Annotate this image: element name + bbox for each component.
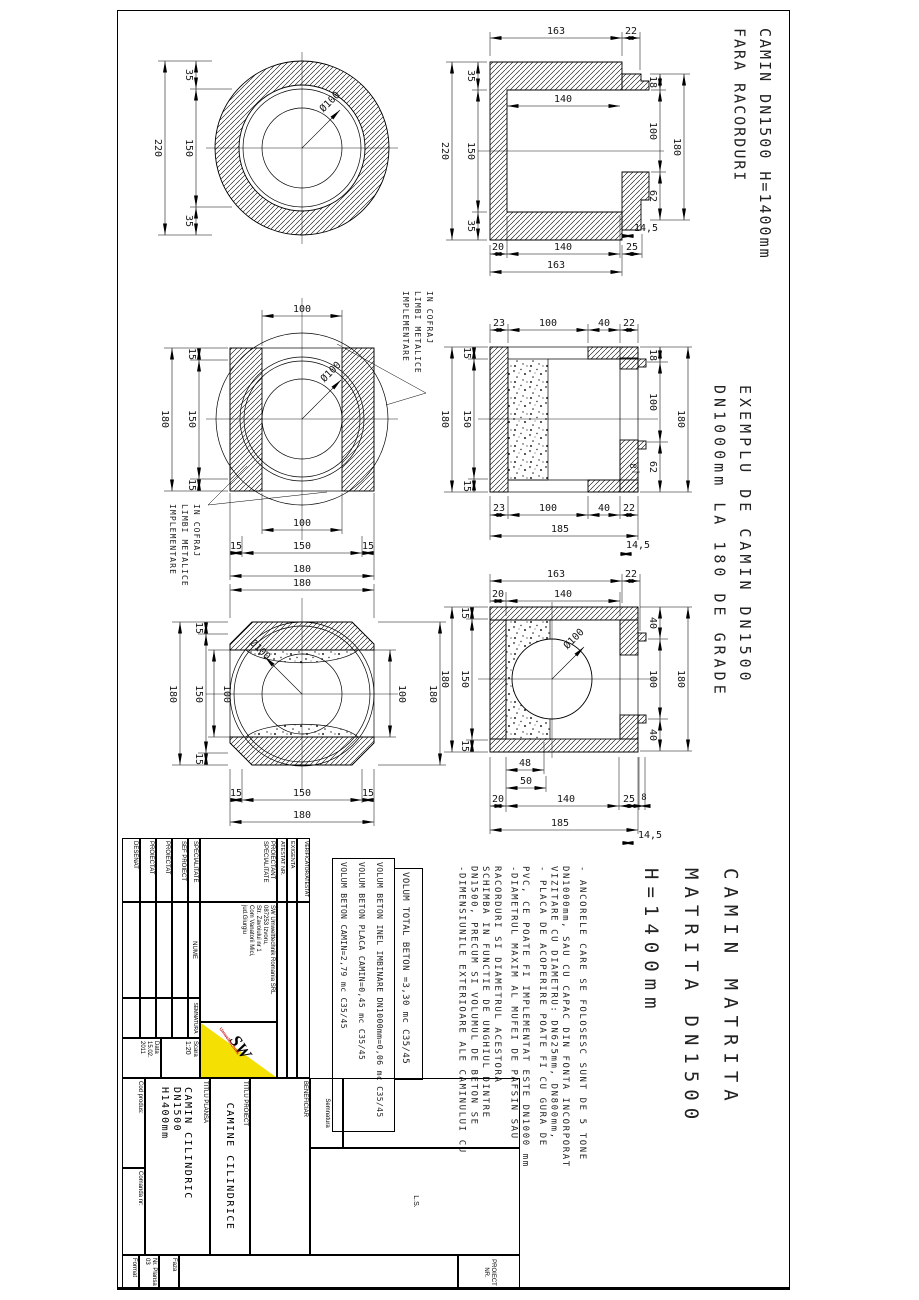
- titleblock-empty-cell: [172, 902, 188, 998]
- dim-label: 150: [293, 788, 311, 799]
- dim-label: 100: [293, 304, 311, 315]
- dim-label: 25: [623, 794, 635, 805]
- titleblock-empty-cell: [297, 902, 310, 1078]
- company-info: SW Umwelttechnik Romania SRL087253 Izvor…: [200, 902, 277, 1022]
- dim-label: 35: [183, 69, 194, 81]
- titleblock-empty-cell: [156, 998, 172, 1038]
- dim-label: 15: [186, 479, 197, 491]
- dim-label: 22: [625, 26, 637, 37]
- title-line: EXEMPLU DE CAMIN DN1500: [732, 385, 758, 715]
- titleblock-empty-cell: [277, 902, 287, 1078]
- dim-label: 180: [427, 685, 438, 703]
- proiectat-label: PROIECTAT: [140, 838, 156, 902]
- dim-label: 163: [547, 260, 565, 271]
- view-plan-fara-racorduri: Ø100 220 35 150 35: [152, 52, 398, 244]
- atestat-nr-label: ATESTAT NR.: [277, 838, 287, 902]
- dim-label: 150: [186, 410, 197, 428]
- titleblock-empty-cell: [122, 998, 140, 1038]
- exigenta-label: EXIGENTA: [287, 838, 297, 902]
- dim-label: 23: [493, 503, 505, 514]
- dim-label: 35: [465, 70, 476, 82]
- dim-label: 150: [183, 139, 194, 157]
- dim-label: 22: [623, 503, 635, 514]
- dim-label: 15: [186, 348, 197, 360]
- dim-label: 15: [459, 607, 470, 619]
- titleblock-empty-cell: [179, 1255, 458, 1290]
- dim-label: 22: [623, 318, 635, 329]
- dim-label: 15: [193, 622, 204, 634]
- titleblock-empty-cell: [140, 998, 156, 1038]
- titleblock-empty-cell: [122, 902, 140, 998]
- dim-label: 15: [230, 788, 242, 799]
- sef-proiect-label: SEF PROIECT: [172, 838, 188, 902]
- dim-label: 22: [625, 569, 637, 580]
- format-cell: Format: [122, 1255, 139, 1290]
- semnatura-cell: Semnatura: [310, 1078, 343, 1148]
- dim-label: 140: [554, 94, 572, 105]
- dim-label: 150: [293, 541, 311, 552]
- dim-label: 100: [539, 503, 557, 514]
- comanda-nr-cell: Comanda nr:: [122, 1168, 145, 1255]
- view-plan-placa-matrita: Ø100 180 180 15 150 15 100 100 180 15 15…: [167, 578, 446, 826]
- dim-label: 150: [193, 685, 204, 703]
- callout-limbi-metalice-top: IMPLEMENTARELIMBI METALICEIN COFRAJ: [399, 291, 435, 401]
- title-fara-racorduri: CAMIN DN1500 H=1400mm FARA RACORDURI: [726, 28, 777, 278]
- dim-label: 180: [159, 410, 170, 428]
- title-camin-matrita: CAMIN MATRITA MATRITA DN1500 H=1400mm: [630, 868, 750, 1188]
- dim-label: 140: [554, 242, 572, 253]
- titlu-plansa-cell: TITLU PLANSA CAMIN CILINDRIC DN1500 H140…: [145, 1078, 210, 1255]
- title-block: Semnatura L.S. PROIECT NR. Faza Nr. Plan…: [122, 838, 520, 1290]
- dim-label: 48: [519, 758, 531, 769]
- dim-label: 40: [647, 729, 658, 741]
- dim-label: 220: [152, 139, 163, 157]
- note-paragraph: - PLACA DE ACOPERIRE POATE FI CU GURA DE…: [535, 866, 570, 1196]
- dim-label: 15: [193, 753, 204, 765]
- title-line: CAMIN MATRITA: [710, 868, 750, 1188]
- ls-cell: L.S.: [310, 1148, 520, 1255]
- dim-label: 180: [293, 810, 311, 821]
- dim-label: 180: [671, 138, 682, 156]
- drawing-sheet: { "page": { "background": "#ffffff", "li…: [0, 0, 919, 1300]
- titleblock-empty-cell: [172, 998, 188, 1038]
- dim-label: 14,5: [634, 223, 658, 234]
- verificator-label: VERIFICATOR/ATESTAT: [297, 838, 310, 902]
- dim-label: 100: [647, 393, 658, 411]
- nume-header: NUME: [188, 902, 200, 998]
- beneficiar-cell: BENEFICIAR: [250, 1078, 310, 1255]
- scara-cell: Scara1:20: [161, 1038, 200, 1078]
- desenat-label: DESENAT: [122, 838, 140, 902]
- title-line: MATRITA DN1500: [670, 868, 710, 1188]
- titleblock-empty-cell: [140, 902, 156, 998]
- dim-label: 185: [551, 818, 569, 829]
- dim-label: 100: [647, 122, 658, 140]
- dim-label: 180: [439, 670, 450, 688]
- dim-label: 25: [626, 242, 638, 253]
- dim-label: 8: [627, 463, 637, 468]
- dim-label: 150: [461, 410, 472, 428]
- title-line: FARA RACORDURI: [726, 28, 752, 278]
- dim-label: 50: [520, 776, 532, 787]
- dim-label: 23: [493, 318, 505, 329]
- dim-label: 15: [461, 480, 472, 492]
- callout-limbi-metalice-bottom: IMPLEMENTARELIMBI METALICEIN COFRAJ: [166, 504, 202, 619]
- dim-label: 14,5: [638, 830, 662, 841]
- dim-label: 180: [439, 410, 450, 428]
- dim-label: 163: [547, 569, 565, 580]
- dim-label: 15: [230, 541, 242, 552]
- title-exemplu: EXEMPLU DE CAMIN DN1500 DN1000mm LA 180 …: [706, 385, 757, 715]
- dim-label: 35: [465, 220, 476, 232]
- dim-label: 40: [598, 503, 610, 514]
- dim-label: 180: [675, 670, 686, 688]
- dim-label: 40: [647, 617, 658, 629]
- dim-label: 150: [465, 142, 476, 160]
- dim-label: 163: [547, 26, 565, 37]
- dim-label: 20: [492, 242, 504, 253]
- dim-label: 20: [492, 589, 504, 600]
- dim-label: 15: [461, 347, 472, 359]
- dim-label: 62: [647, 461, 658, 473]
- dim-label: 180: [167, 685, 178, 703]
- dim-label: 15: [362, 541, 374, 552]
- dim-label: 100: [221, 685, 232, 703]
- sw-logo: SW Umwelttechnik: [200, 1022, 277, 1078]
- dim-label: 100: [293, 518, 311, 529]
- dim-label: 150: [459, 670, 470, 688]
- nr-plansa-cell: Nr. Plansa03: [139, 1255, 159, 1290]
- specialitate-header: SPECIALITATE: [188, 838, 200, 902]
- dim-label: 40: [598, 318, 610, 329]
- data-cell: Data15.02.2011: [122, 1038, 161, 1078]
- dim-label: 180: [675, 410, 686, 428]
- title-line: CAMIN DN1500 H=1400mm: [752, 28, 778, 278]
- title-line: DN1000mm LA 180 DE GRADE: [706, 385, 732, 715]
- proiectant-label: PROIECTANTSPECIALITATE: [200, 838, 277, 902]
- dim-label: 15: [362, 788, 374, 799]
- dim-label: 100: [539, 318, 557, 329]
- proiectat-label: PROIECTAT: [156, 838, 172, 902]
- titleblock-empty-cell: [343, 1078, 520, 1148]
- note-paragraph: - ANCORELE CARE SE FOLOSESC SUNT DE 5 TO…: [575, 866, 587, 1196]
- dim-label: 185: [551, 524, 569, 535]
- dim-label: 180: [293, 578, 311, 589]
- dim-label: 62: [647, 190, 658, 202]
- dim-label: 180: [293, 564, 311, 575]
- dim-label: 140: [557, 794, 575, 805]
- dim-label: 100: [396, 685, 407, 703]
- view-section-fara-racorduri: 140 163 22 220 35 150 35 18 100 62 180 1…: [439, 26, 690, 276]
- dim-label: 18: [647, 349, 658, 361]
- dim-label: 20: [492, 794, 504, 805]
- dim-label: 35: [183, 215, 194, 227]
- dim-label: 15: [459, 740, 470, 752]
- titleblock-empty-cell: [156, 902, 172, 998]
- titleblock-empty-cell: [287, 902, 297, 1078]
- titlu-proiect-cell: TITLU PROIECT CAMINE CILINDRICE: [210, 1078, 250, 1255]
- dim-label: 18: [647, 76, 658, 88]
- cod-produs-cell: Cod produs:: [122, 1078, 145, 1168]
- semnatura-header: SEMNATURA: [188, 998, 200, 1038]
- title-line: H=1400mm: [630, 868, 670, 1188]
- dim-label: 14,5: [626, 540, 650, 551]
- view-section-matrita-dn1000: 23 100 40 22 180 15 150 15 18 100 62 180…: [439, 318, 692, 554]
- dim-label: 8: [641, 793, 646, 803]
- faza-cell: Faza: [159, 1255, 179, 1290]
- proiect-nr-cell: PROIECT NR.: [458, 1255, 520, 1290]
- dim-label: 140: [554, 589, 572, 600]
- dim-label: 100: [647, 670, 658, 688]
- dim-label: 220: [439, 142, 450, 160]
- view-section-matrita-gaura: Ø100 163 22 20 140 180 15 150 15 40 100 …: [439, 569, 692, 843]
